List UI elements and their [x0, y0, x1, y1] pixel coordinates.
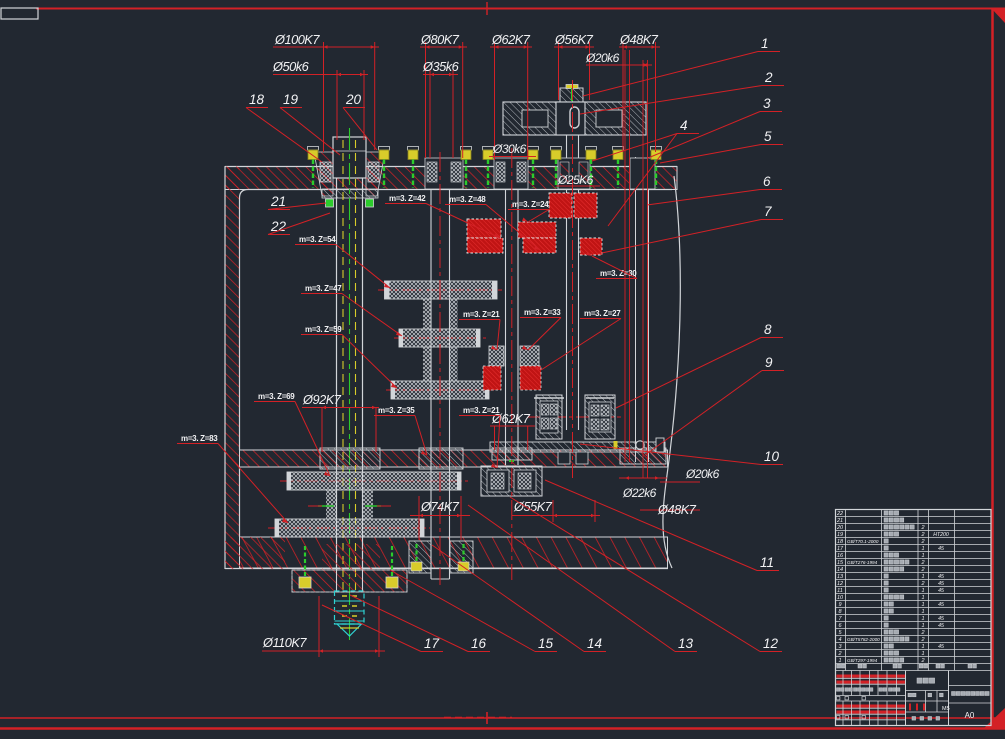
svg-text:1: 1: [921, 616, 924, 622]
svg-text:1: 1: [921, 609, 924, 615]
svg-text:m=3. Z=54: m=3. Z=54: [299, 235, 336, 244]
svg-text:Ø25K6: Ø25K6: [557, 173, 594, 187]
svg-text:12: 12: [837, 581, 843, 587]
svg-text:18: 18: [837, 539, 844, 545]
svg-text:12: 12: [763, 636, 779, 651]
svg-text:1: 1: [921, 651, 924, 657]
svg-text:Ø110K7: Ø110K7: [262, 635, 307, 650]
svg-text:15: 15: [837, 560, 844, 566]
svg-text:2: 2: [920, 525, 924, 531]
svg-text:2: 2: [837, 651, 841, 657]
svg-text:M5: M5: [942, 706, 950, 712]
svg-text:Ø80K7: Ø80K7: [420, 32, 460, 47]
svg-text:GB/T297-1994: GB/T297-1994: [847, 658, 878, 663]
svg-text:HT200: HT200: [933, 532, 949, 538]
svg-text:GB/T70.1-2000: GB/T70.1-2000: [847, 539, 879, 544]
svg-text:19: 19: [837, 532, 843, 538]
svg-text:A0: A0: [965, 711, 975, 720]
svg-text:Ø30k6: Ø30k6: [492, 142, 527, 156]
svg-text:10: 10: [764, 449, 780, 464]
svg-text:45: 45: [938, 574, 944, 580]
svg-text:3: 3: [763, 96, 771, 111]
svg-text:2: 2: [920, 560, 924, 566]
svg-text:9: 9: [838, 602, 841, 608]
svg-text:m=3. Z=27: m=3. Z=27: [584, 309, 621, 318]
svg-text:45: 45: [938, 644, 944, 650]
svg-text:4: 4: [838, 637, 841, 643]
svg-text:1: 1: [838, 658, 841, 664]
svg-text:m=3. Z=33: m=3. Z=33: [524, 308, 561, 317]
svg-text:m=3. Z=47: m=3. Z=47: [305, 284, 342, 293]
svg-text:8: 8: [764, 322, 772, 337]
svg-text:45: 45: [938, 588, 944, 594]
svg-text:Ø48K7: Ø48K7: [619, 32, 659, 47]
svg-text:Ø20k6: Ø20k6: [685, 467, 720, 481]
svg-text:4: 4: [680, 118, 688, 133]
svg-text:15: 15: [538, 636, 554, 651]
svg-text:2: 2: [920, 539, 924, 545]
svg-text:2: 2: [920, 581, 924, 587]
svg-text:45: 45: [938, 623, 944, 629]
svg-text:45: 45: [938, 546, 944, 552]
svg-text:GB/T276-1994: GB/T276-1994: [847, 560, 878, 565]
svg-text:14: 14: [837, 567, 843, 573]
svg-text:1: 1: [921, 644, 924, 650]
svg-text:m=3. Z=59: m=3. Z=59: [305, 325, 342, 334]
svg-text:m=3. Z=24: m=3. Z=24: [512, 200, 549, 209]
svg-text:1: 1: [761, 36, 769, 51]
svg-text:Ø35k6: Ø35k6: [422, 59, 460, 74]
svg-text:Ø48K7: Ø48K7: [657, 502, 697, 517]
svg-text:16: 16: [471, 636, 487, 651]
svg-text:m=3. Z=35: m=3. Z=35: [378, 406, 415, 415]
svg-text:Ø22k6: Ø22k6: [622, 486, 657, 500]
svg-text:16: 16: [837, 553, 844, 559]
svg-text:5: 5: [764, 129, 772, 144]
svg-text:14: 14: [587, 636, 602, 651]
svg-text:Ø100K7: Ø100K7: [274, 32, 320, 47]
svg-text:Ø50k6: Ø50k6: [272, 59, 310, 74]
svg-text:1: 1: [921, 623, 924, 629]
svg-text:Ø55K7: Ø55K7: [513, 499, 553, 514]
svg-text:20: 20: [345, 92, 362, 107]
svg-text:2: 2: [920, 567, 924, 573]
svg-text:22: 22: [270, 219, 287, 234]
svg-text:m=3. Z=21: m=3. Z=21: [463, 406, 500, 415]
svg-text:22: 22: [836, 511, 843, 517]
svg-text:6: 6: [763, 174, 771, 189]
svg-text:m=3. Z=83: m=3. Z=83: [181, 434, 218, 443]
svg-text:11: 11: [837, 588, 843, 594]
svg-text:11: 11: [760, 555, 774, 570]
svg-text:10: 10: [837, 595, 844, 601]
svg-text:7: 7: [764, 204, 772, 219]
svg-text:2: 2: [764, 70, 773, 85]
svg-text:2: 2: [920, 658, 924, 664]
svg-text:m=3. Z=69: m=3. Z=69: [258, 392, 295, 401]
svg-text:Ø20k6: Ø20k6: [585, 51, 620, 65]
svg-text:17: 17: [837, 546, 844, 552]
svg-text:2: 2: [920, 637, 924, 643]
svg-text:1: 1: [921, 574, 924, 580]
svg-text:1: 1: [921, 602, 924, 608]
svg-text:19: 19: [283, 92, 299, 107]
svg-text:9: 9: [765, 355, 773, 370]
svg-text:m=3. Z=42: m=3. Z=42: [389, 194, 426, 203]
svg-text:45: 45: [938, 581, 944, 587]
svg-text:13: 13: [837, 574, 844, 580]
svg-text:1: 1: [921, 595, 924, 601]
svg-text:Ø92K7: Ø92K7: [302, 392, 342, 407]
svg-text:1: 1: [921, 546, 924, 552]
svg-text:20: 20: [836, 525, 844, 531]
svg-text:GB/T5782-2000: GB/T5782-2000: [847, 637, 880, 642]
svg-text:18: 18: [249, 92, 265, 107]
svg-text:2: 2: [920, 630, 924, 636]
svg-text:1: 1: [921, 553, 924, 559]
svg-text:45: 45: [938, 616, 944, 622]
svg-text:21: 21: [270, 194, 286, 209]
svg-text:Ø56K7: Ø56K7: [554, 32, 594, 47]
svg-text:13: 13: [678, 636, 694, 651]
svg-text:21: 21: [836, 518, 843, 524]
svg-text:Ø62K7: Ø62K7: [491, 32, 531, 47]
svg-text:m=3. Z=30: m=3. Z=30: [600, 269, 637, 278]
svg-text:1: 1: [921, 588, 924, 594]
svg-text:2: 2: [920, 532, 924, 538]
svg-text:m=3. Z=21: m=3. Z=21: [463, 310, 500, 319]
svg-text:45: 45: [938, 602, 944, 608]
svg-text:m=3. Z=48: m=3. Z=48: [449, 195, 486, 204]
svg-text:17: 17: [424, 636, 440, 651]
svg-text:Ø74K7: Ø74K7: [420, 499, 460, 514]
